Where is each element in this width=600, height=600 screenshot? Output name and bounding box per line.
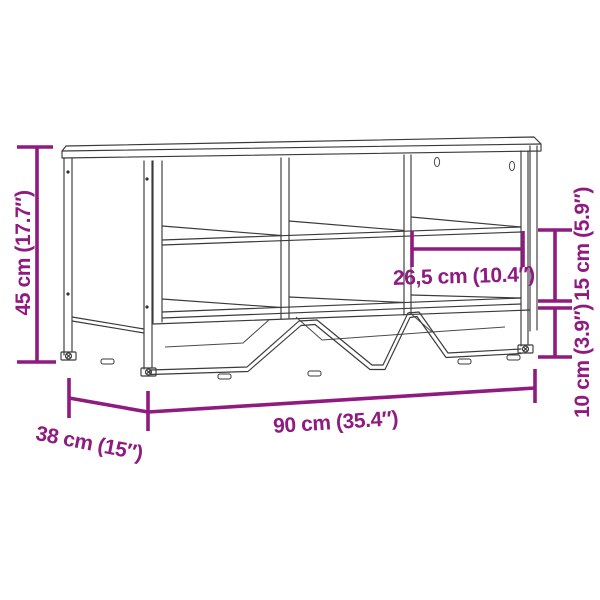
- dimension-depth: 38 cm (15″): [34, 378, 148, 465]
- top-board: [62, 137, 541, 158]
- back-panel-holes: [434, 157, 514, 170]
- dimension-leg-height: 10 cm (3.9″): [538, 304, 594, 418]
- leg-height-label: 10 cm (3.9″): [571, 304, 594, 418]
- metal-frame-legs: [101, 312, 521, 379]
- dimension-width: 90 cm (35.4″): [148, 369, 535, 438]
- product-dimension-diagram: 45 cm (17.7″) 90 cm (35.4″) 38 cm (15″) …: [0, 0, 600, 600]
- dimension-compartment-height: 15 cm (5.9″): [538, 187, 594, 301]
- diagram-svg: 45 cm (17.7″) 90 cm (35.4″) 38 cm (15″) …: [0, 0, 600, 600]
- width-label: 90 cm (35.4″): [272, 407, 398, 438]
- dimension-compartment-width: 26,5 cm (10.4″): [393, 231, 535, 290]
- depth-label: 38 cm (15″): [34, 422, 145, 465]
- left-side-panel: [61, 158, 156, 376]
- compartment-width-label: 26,5 cm (10.4″): [393, 263, 535, 290]
- furniture-line-art: [61, 137, 541, 379]
- dimension-height: 45 cm (17.7″): [12, 147, 56, 362]
- bottom-board: [153, 295, 530, 324]
- middle-shelf: [162, 217, 521, 245]
- compartment-height-label: 15 cm (5.9″): [571, 187, 594, 301]
- height-label: 45 cm (17.7″): [12, 190, 35, 315]
